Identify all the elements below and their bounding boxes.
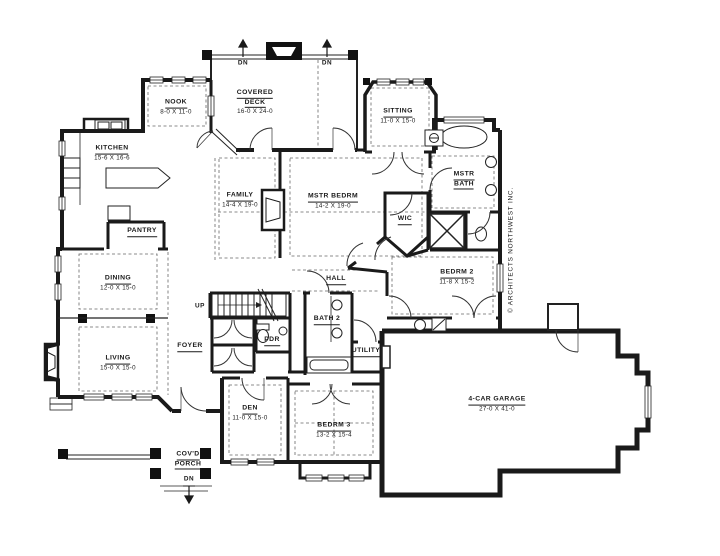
floor-plan: NOOK8-0 X 11-0 COVEREDDECK 16-0 X 24-0 S… xyxy=(0,0,720,556)
room-label-bedrm-2: BEDRM 211-8 X 15-2 xyxy=(439,269,474,286)
bathtub-icon xyxy=(441,126,487,148)
bathtub-icon xyxy=(307,357,351,373)
room-label-den: DEN11-0 X 15-0 xyxy=(232,405,267,422)
garage-entry-stoop xyxy=(548,304,578,330)
room-label-bedrm-3: BEDRM 313-2 X 15-4 xyxy=(316,422,352,439)
toilet-icon xyxy=(476,227,487,241)
sink-icon xyxy=(415,320,426,331)
copyright-text: © ARCHITECTS NORTHWEST INC. xyxy=(508,187,515,313)
room-label-wic: WIC xyxy=(398,215,412,225)
deck-fireplace-icon xyxy=(266,42,302,60)
window-icons xyxy=(55,77,651,481)
room-label-covd-porch: COV'DPORCH xyxy=(175,450,202,469)
stairs-up-marker: UP xyxy=(195,303,205,310)
deck-dn-marker-right: DN xyxy=(322,60,332,67)
sink-icon xyxy=(486,185,497,196)
room-label-utility: UTILITY xyxy=(352,347,380,357)
sink-icon xyxy=(332,328,342,338)
room-label-pdr: PDR xyxy=(264,336,280,346)
shower-icon xyxy=(432,318,446,331)
room-label-pantry: PANTRY xyxy=(127,227,157,237)
room-label-covered-deck: COVEREDDECK 16-0 X 24-0 xyxy=(237,89,273,115)
room-label-family: FAMILY14-4 X 19-0 xyxy=(222,192,258,209)
room-label-mstr-bedrm: MSTR BEDRM14-2 X 19-0 xyxy=(308,193,358,210)
ironing-board-icon xyxy=(382,346,390,368)
room-label-sitting: SITTING11-0 X 15-0 xyxy=(380,108,415,125)
room-label-hall: HALL xyxy=(326,275,346,285)
deck-dn-marker-left: DN xyxy=(238,60,248,67)
room-label-garage: 4-CAR GARAGE27-0 X 41-0 xyxy=(468,396,525,413)
shower-icon xyxy=(430,214,464,248)
sink-icon xyxy=(279,327,287,335)
family-fireplace-icon xyxy=(262,190,284,230)
room-label-bath-2: BATH 2 xyxy=(314,315,340,325)
room-label-dining: DINING12-0 X 15-0 xyxy=(100,275,136,292)
room-label-mstr-bath: MSTRBATH xyxy=(454,170,475,189)
window-seat-icon xyxy=(425,130,443,146)
room-label-living: LIVING15-0 X 15-0 xyxy=(100,355,136,372)
room-label-foyer: FOYER xyxy=(177,342,202,352)
porch-dn-marker: DN xyxy=(184,476,194,483)
room-label-kitchen: KITCHEN15-6 X 16-6 xyxy=(94,145,130,162)
toilet-icon xyxy=(332,300,342,310)
sink-icon xyxy=(486,157,497,168)
kitchen-fixtures xyxy=(62,120,170,220)
room-label-nook: NOOK8-0 X 11-0 xyxy=(160,99,191,116)
